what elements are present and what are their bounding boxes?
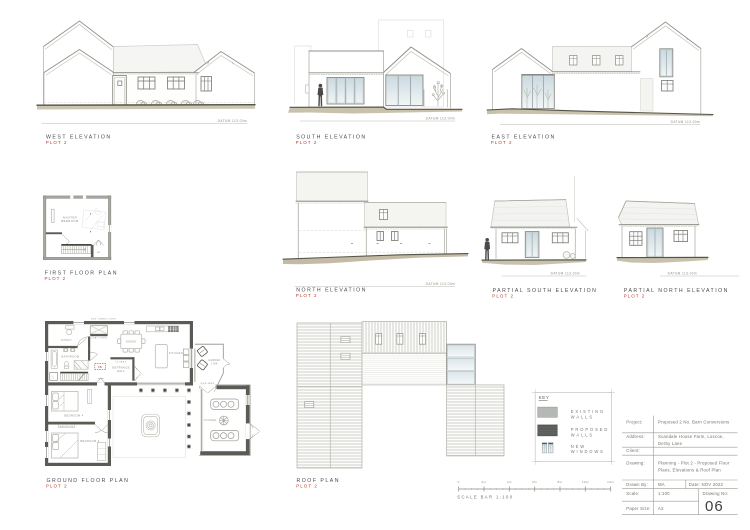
svg-text:Paper Size:: Paper Size: — [626, 506, 650, 511]
svg-text:DINING: DINING — [126, 341, 137, 344]
svg-text:BATHROOM: BATHROOM — [62, 355, 80, 359]
svg-text:HALL: HALL — [117, 369, 125, 373]
svg-text:DATUM 113.00m: DATUM 113.00m — [218, 119, 247, 123]
svg-text:PLOT 2: PLOT 2 — [491, 140, 513, 145]
svg-text:Scandale House Farm, Loscoe,: Scandale House Farm, Loscoe, — [658, 434, 724, 439]
svg-text:WARDROBE: WARDROBE — [59, 425, 74, 428]
svg-text:Drawn By:: Drawn By: — [626, 482, 648, 487]
svg-text:0: 0 — [458, 480, 460, 484]
svg-text:Drawing:: Drawing: — [626, 461, 645, 466]
svg-text:PLOT 2: PLOT 2 — [492, 294, 514, 299]
svg-text:Planning - Plot 2 - Proposed F: Planning - Plot 2 - Proposed Floor — [658, 461, 730, 466]
svg-text:2m: 2m — [482, 480, 487, 484]
svg-text:A2: A2 — [658, 506, 664, 511]
svg-text:Derby Lane: Derby Lane — [658, 441, 683, 446]
svg-text:8m: 8m — [558, 480, 563, 484]
svg-text:DATUM 113.00m: DATUM 113.00m — [426, 116, 455, 120]
svg-text:10m: 10m — [582, 480, 589, 484]
svg-text:SIDE PASS: SIDE PASS — [200, 382, 214, 385]
svg-text:Address:: Address: — [626, 434, 645, 439]
svg-text:LINK: LINK — [211, 363, 218, 365]
svg-text:4m: 4m — [507, 480, 512, 484]
svg-text:BEDROOM: BEDROOM — [61, 219, 79, 223]
svg-text:SCALE BAR 1:100: SCALE BAR 1:100 — [457, 494, 513, 499]
svg-text:Client:: Client: — [626, 448, 640, 453]
svg-text:STUDY: STUDY — [61, 338, 72, 342]
svg-text:06: 06 — [705, 498, 724, 515]
svg-text:PLOT 2: PLOT 2 — [624, 294, 646, 299]
svg-text:LOUNGE: LOUNGE — [204, 419, 217, 422]
svg-text:DATUM 113.00m: DATUM 113.00m — [551, 271, 580, 275]
svg-text:SUN TUNNEL OVER: SUN TUNNEL OVER — [91, 319, 116, 321]
svg-text:12m: 12m — [607, 480, 614, 484]
svg-text:Drawing No:: Drawing No: — [703, 491, 729, 496]
svg-text:MA: MA — [658, 482, 665, 487]
svg-text:1:100: 1:100 — [658, 491, 670, 496]
svg-text:FB: FB — [98, 365, 102, 369]
svg-text:PLOT 2: PLOT 2 — [46, 484, 68, 489]
svg-text:DATUM 113.00m: DATUM 113.00m — [668, 271, 697, 275]
svg-text:PLOT 2: PLOT 2 — [45, 276, 67, 281]
svg-text:COAT CUPB: COAT CUPB — [91, 337, 107, 340]
svg-text:Date: NOV 2022: Date: NOV 2022 — [689, 482, 724, 487]
svg-text:KITCHEN: KITCHEN — [169, 351, 183, 355]
svg-text:Scale:: Scale: — [626, 491, 639, 496]
svg-text:PLOT 2: PLOT 2 — [296, 293, 318, 298]
svg-text:BEDROOM 3: BEDROOM 3 — [80, 439, 99, 443]
svg-text:EXISTING: EXISTING — [571, 409, 605, 414]
svg-text:CLOAKS: CLOAKS — [115, 360, 126, 363]
svg-text:DATUM 113.00m: DATUM 113.00m — [426, 282, 455, 286]
svg-text:Plans, Elevations & Roof Plan: Plans, Elevations & Roof Plan — [658, 468, 721, 473]
svg-text:WINDOWS: WINDOWS — [571, 449, 605, 454]
svg-text:ENTRANCE: ENTRANCE — [112, 366, 129, 370]
svg-text:Proposed 2 No. Barn Conversion: Proposed 2 No. Barn Conversions — [658, 420, 729, 425]
svg-text:Project:: Project: — [626, 420, 642, 425]
svg-text:PLOT 2: PLOT 2 — [296, 140, 318, 145]
svg-text:KEY: KEY — [539, 395, 550, 400]
svg-text:6m: 6m — [532, 480, 537, 484]
svg-text:WALLS: WALLS — [571, 432, 594, 437]
svg-text:PLOT 2: PLOT 2 — [46, 140, 68, 145]
svg-text:WALLS: WALLS — [571, 415, 594, 420]
svg-text:NEW: NEW — [571, 444, 586, 449]
svg-text:DATUM 113.00m: DATUM 113.00m — [671, 120, 700, 124]
svg-text:PLOT 2: PLOT 2 — [296, 484, 318, 489]
svg-text:GARDEN: GARDEN — [208, 359, 220, 362]
svg-text:AC: AC — [97, 251, 101, 254]
svg-text:BEDROOM 4: BEDROOM 4 — [64, 413, 83, 417]
svg-text:PROPOSED: PROPOSED — [571, 427, 609, 432]
